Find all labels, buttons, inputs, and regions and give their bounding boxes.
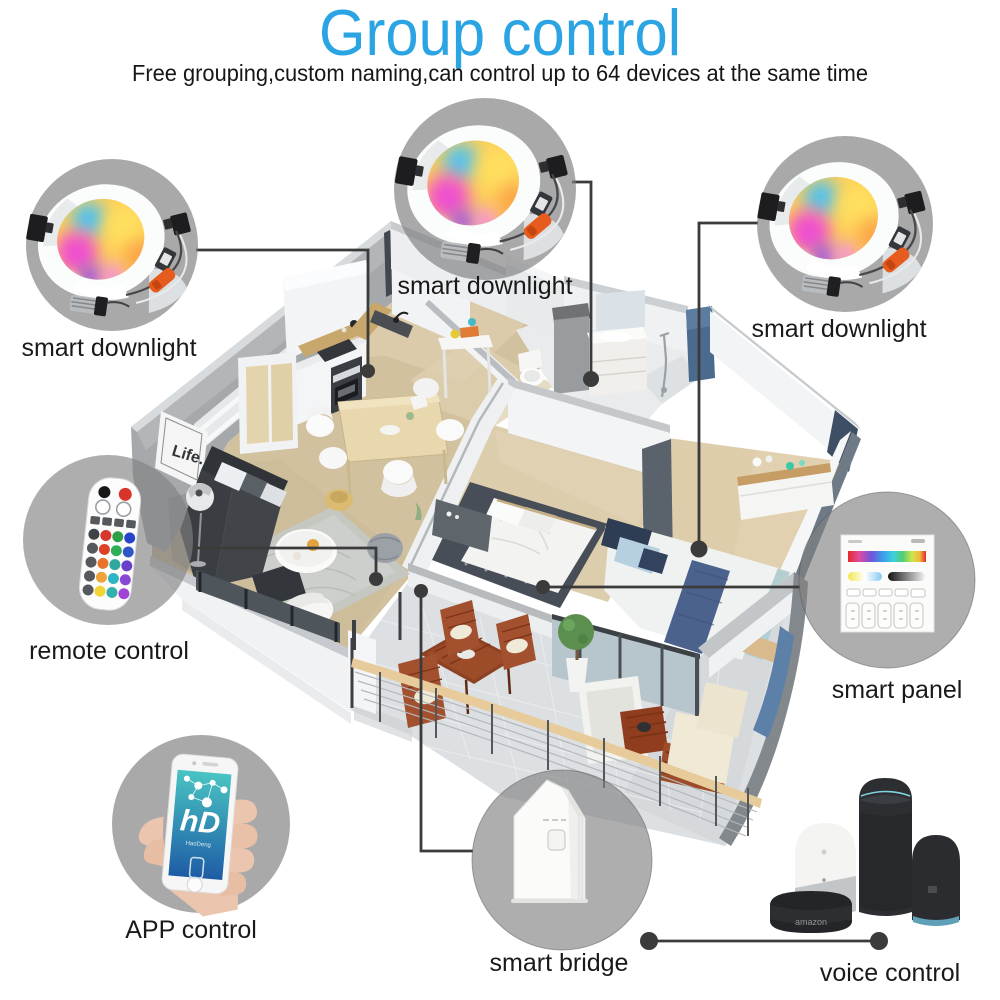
- svg-text:smart bridge: smart bridge: [490, 949, 629, 977]
- svg-text:amazon: amazon: [795, 917, 827, 927]
- svg-text:remote control: remote control: [29, 637, 189, 665]
- svg-text:APP control: APP control: [125, 916, 257, 944]
- svg-text:voice control: voice control: [820, 959, 960, 987]
- svg-text:smart downlight: smart downlight: [397, 272, 572, 300]
- svg-text:smart panel: smart panel: [832, 676, 963, 704]
- svg-text:smart downlight: smart downlight: [751, 315, 926, 343]
- svg-text:Group control: Group control: [319, 0, 681, 69]
- svg-text:Free grouping,custom naming,ca: Free grouping,custom naming,can control …: [132, 60, 868, 86]
- svg-text:smart downlight: smart downlight: [21, 334, 196, 362]
